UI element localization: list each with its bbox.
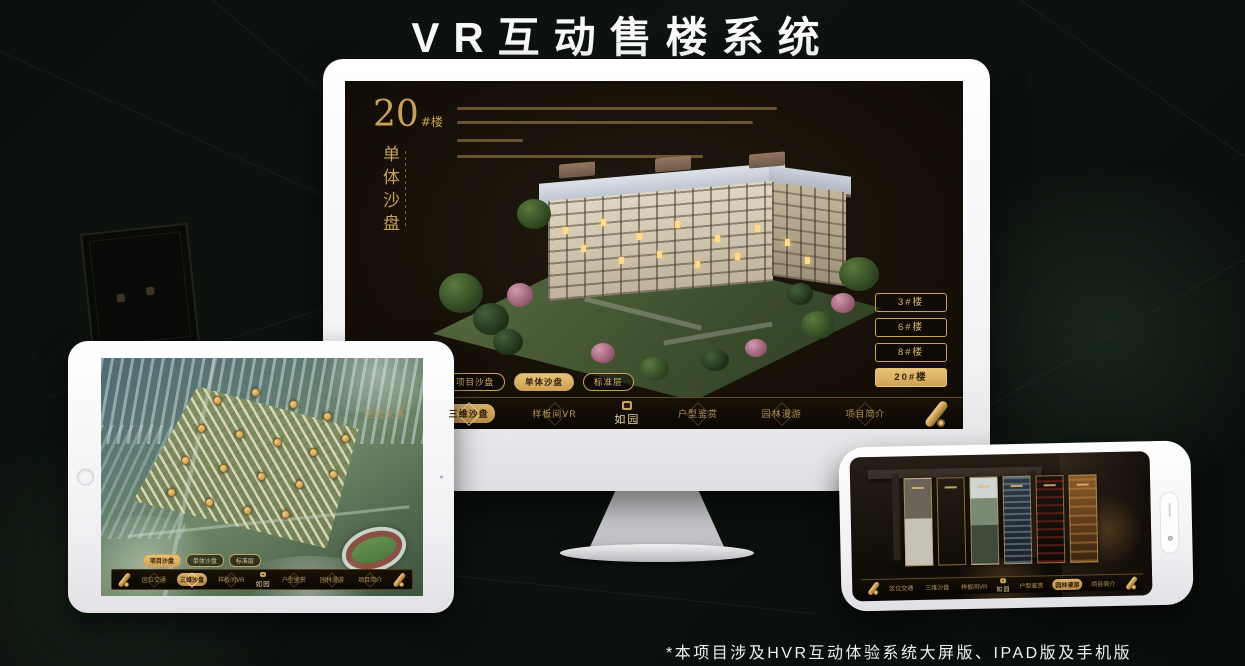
section-title-vertical: 单体沙盘: [377, 145, 402, 237]
floor-number-heading: 20#楼: [373, 97, 443, 133]
view-tabs: 项目沙盘 单体沙盘 标准层: [445, 373, 634, 391]
nav-item-floorplans[interactable]: 户型鉴赏: [672, 404, 724, 423]
floor-suffix: #楼: [421, 115, 443, 129]
brand-logo: 如园: [256, 572, 271, 588]
speaker-icon: [1168, 503, 1170, 517]
floor-button-8[interactable]: 8#楼: [875, 343, 947, 362]
monitor-stand: [589, 489, 725, 549]
tab-standard-floor[interactable]: 标准层: [583, 373, 634, 391]
floor-selector: 3#楼 6#楼 8#楼 20#楼: [875, 293, 947, 393]
scroll-icon-left[interactable]: [118, 572, 131, 588]
nav-item-project-intro[interactable]: 项目简介: [1088, 577, 1118, 589]
nav-item-showroom-vr[interactable]: 样板间VR: [958, 580, 991, 592]
tablet: 项目沙盘 单体沙盘 标准层 区位交通 三维沙盘 样板间VR 如园 户型鉴赏 园林…: [68, 341, 454, 613]
home-button[interactable]: [77, 469, 94, 486]
tab-single-sandbox[interactable]: 单体沙盘: [186, 554, 224, 567]
phone-screen: 区位交通 三维沙盘 样板间VR 如园 户型鉴赏 园林漫游 项目简介: [850, 451, 1153, 601]
gallery-card[interactable]: [1035, 475, 1065, 564]
camera-icon: [1167, 536, 1172, 541]
nav-item-floorplans[interactable]: 户型鉴赏: [1016, 579, 1046, 591]
tablet-view-tabs: 项目沙盘 单体沙盘 标准层: [143, 554, 261, 567]
nav-item-garden-roam[interactable]: 园林漫游: [1052, 578, 1082, 590]
nav-item-location[interactable]: 区位交通: [886, 582, 916, 594]
nav-item-location[interactable]: 区位交通: [139, 573, 169, 586]
background-plaque: [80, 223, 200, 356]
seal-icon: [1000, 578, 1006, 583]
seal-icon: [622, 401, 632, 410]
floor-button-3[interactable]: 3#楼: [875, 293, 947, 312]
scroll-icon[interactable]: [923, 399, 949, 429]
tab-standard-floor[interactable]: 标准层: [229, 554, 261, 567]
vertical-subtitle-line: [405, 151, 406, 229]
footnote: *本项目涉及HVR互动体验系统大屏版、IPAD版及手机版: [666, 639, 1132, 663]
floor-button-20[interactable]: 20#楼: [875, 368, 947, 387]
nav-item-showroom-vr[interactable]: 样板间VR: [526, 404, 583, 423]
nav-item-floorplans[interactable]: 户型鉴赏: [279, 573, 309, 586]
brand-logo: 如园: [614, 401, 640, 427]
tab-project-sandbox[interactable]: 项目沙盘: [445, 373, 505, 391]
nav-item-project-intro[interactable]: 项目简介: [839, 404, 891, 423]
phone: 区位交通 三维沙盘 样板间VR 如园 户型鉴赏 园林漫游 项目简介: [838, 440, 1193, 611]
vr-scene-gallery: [903, 474, 1098, 566]
scroll-icon-right[interactable]: [1124, 575, 1138, 590]
gallery-card[interactable]: [1002, 475, 1032, 564]
tab-single-sandbox[interactable]: 单体沙盘: [514, 373, 574, 391]
brand-logo: 如园: [996, 578, 1010, 593]
nav-item-3d-sandbox[interactable]: 三维沙盘: [922, 581, 952, 593]
promo-stage: VR互动售楼系统 20#楼 单体沙盘: [0, 0, 1245, 666]
nav-item-project-intro[interactable]: 项目简介: [355, 573, 385, 586]
nav-item-showroom-vr[interactable]: 样板间VR: [215, 573, 247, 586]
floor-button-6[interactable]: 6#楼: [875, 318, 947, 337]
gallery-card[interactable]: [936, 477, 966, 566]
gallery-card[interactable]: [969, 476, 999, 565]
gallery-card[interactable]: [903, 477, 933, 566]
gallery-card[interactable]: [1068, 474, 1098, 563]
nav-item-garden-roam[interactable]: 园林漫游: [317, 573, 347, 586]
nav-item-garden-roam[interactable]: 园林漫游: [756, 404, 808, 423]
nav-item-3d-sandbox[interactable]: 三维沙盘: [177, 573, 207, 586]
page-title: VR互动售楼系统: [0, 4, 1245, 65]
tab-project-sandbox[interactable]: 项目沙盘: [143, 554, 181, 567]
monitor-base: [560, 544, 754, 562]
floor-number: 20: [373, 94, 419, 135]
phone-notch: [1159, 492, 1179, 554]
scroll-icon-left[interactable]: [866, 580, 880, 595]
scroll-icon-right[interactable]: [393, 572, 406, 588]
seal-icon: [260, 572, 266, 577]
tablet-navbar: 区位交通 三维沙盘 样板间VR 如园 户型鉴赏 园林漫游 项目简介: [111, 569, 414, 590]
camera-icon: [440, 476, 443, 479]
tablet-screen: 项目沙盘 单体沙盘 标准层 区位交通 三维沙盘 样板间VR 如园 户型鉴赏 园林…: [101, 358, 423, 596]
building-model-illustration: [433, 161, 883, 405]
